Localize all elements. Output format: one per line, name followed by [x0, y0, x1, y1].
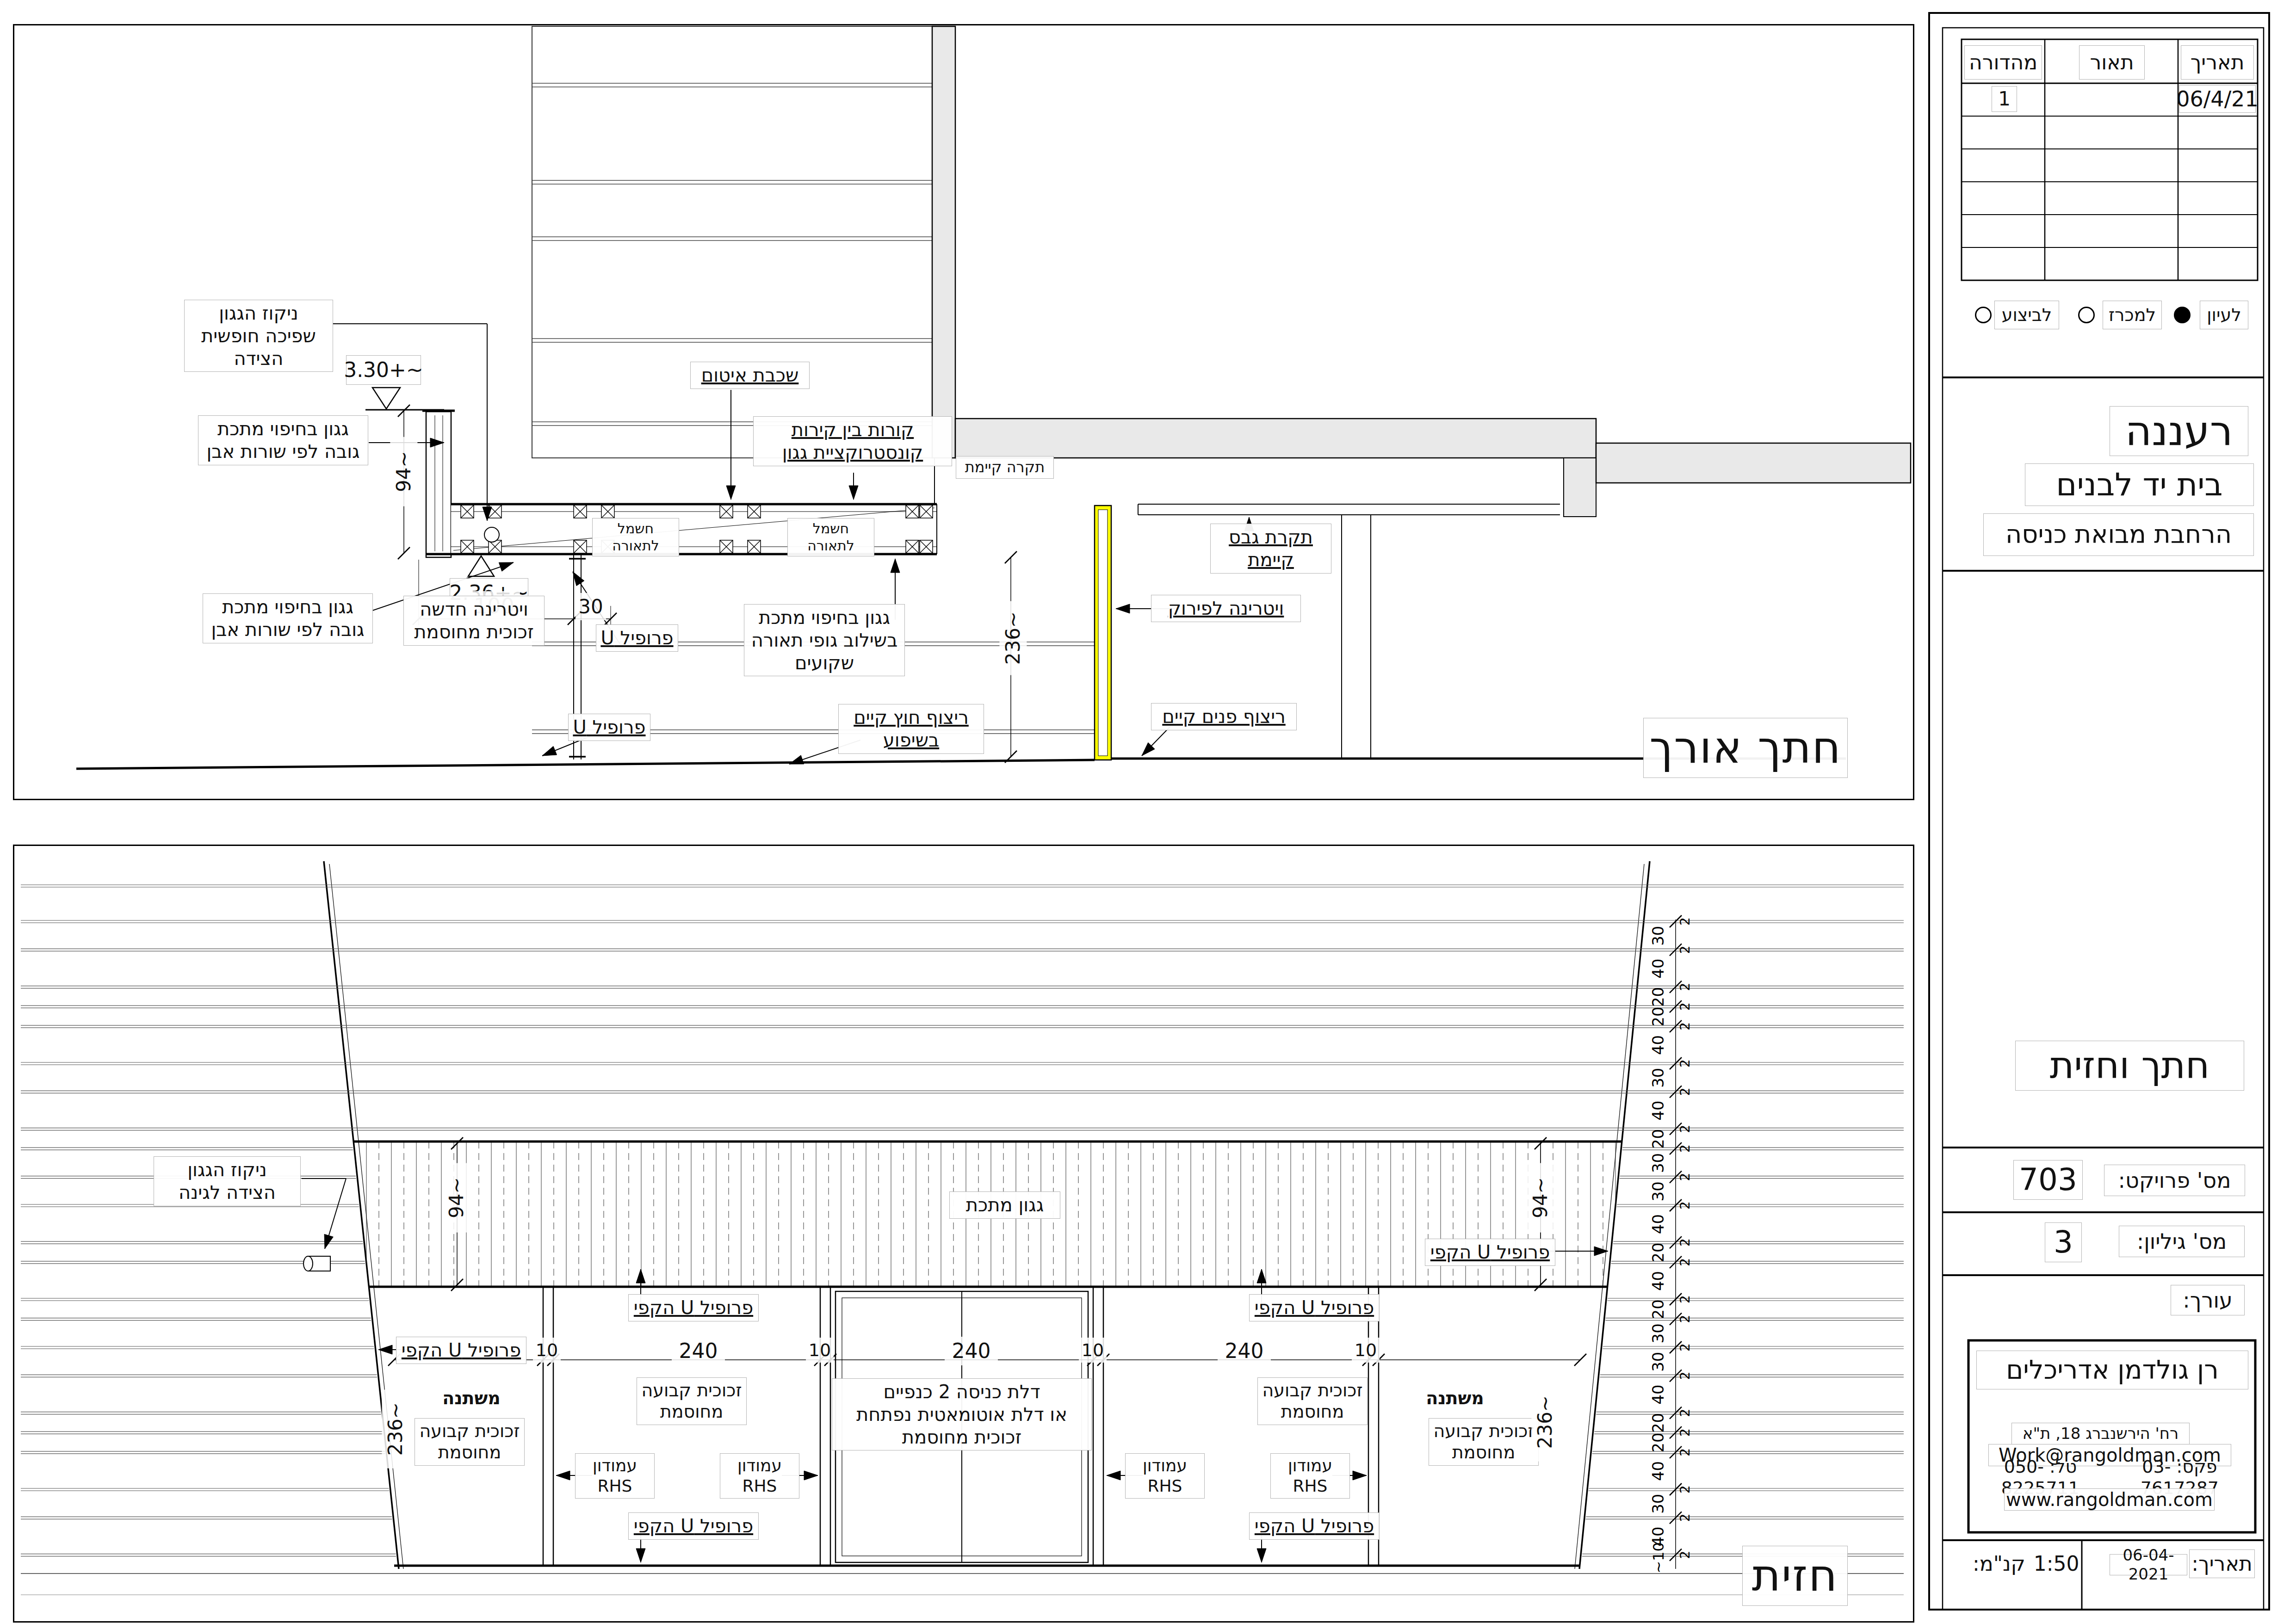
scale-value: 1:50 — [2034, 1551, 2079, 1576]
scale-label: קנ"מ: — [1973, 1551, 2025, 1576]
note-metal-canopy: גגון מתכת — [949, 1191, 1060, 1219]
note-u-perimeter-bay4-bottom: פרופיל U הקפי — [1249, 1512, 1380, 1540]
scale-group: קנ"מ: 1:50 — [1969, 1549, 2068, 1578]
section-caption: חתך אורך — [1643, 718, 1848, 778]
firm-address: רח' הירשנברג 18, ת"א — [2011, 1423, 2190, 1445]
dim-facade-fascia-right: ~94 — [1527, 1163, 1554, 1233]
note-u-profile-bottom: פרופיל U — [568, 714, 650, 741]
date-value: 06-04-2021 — [2110, 1554, 2187, 1575]
dim-30: 30 — [576, 593, 606, 620]
dim-bay-240-3: 240 — [1218, 1337, 1271, 1365]
note-u-perimeter-bay2-bottom: פרופיל U הקפי — [628, 1512, 759, 1540]
dim-glass-height-left: ~236 — [382, 1390, 409, 1469]
dim-facade-fascia-left: ~94 — [443, 1163, 470, 1233]
project-number-label: מס' פרויקט: — [2104, 1165, 2245, 1196]
firm-website[interactable]: www.rangoldman.com — [2004, 1488, 2215, 1511]
radio-label-for-review[interactable]: לעיון — [2200, 301, 2248, 329]
dim-mullion-2: 10 — [806, 1338, 834, 1363]
note-interior-floor: ריצוף פנים קיים — [1151, 703, 1297, 730]
note-rhs-column-4: עמודון RHS — [1270, 1453, 1350, 1499]
dim-fascia-height: ~94 — [390, 437, 417, 506]
dim-mullion-3: 10 — [1079, 1338, 1107, 1363]
note-entrance-door: דלת כניסה 2 כנפיים או דלת אוטומאטית נפתח… — [832, 1378, 1092, 1450]
note-canopy-cladding-1: גגון בחיפוי מתכת גובה לפי שורות אבן — [198, 415, 368, 465]
level-marker-top: ~+3.30 — [346, 355, 421, 385]
facade-caption: חזית — [1742, 1546, 1848, 1606]
note-u-perimeter-bay5: פרופיל U הקפי — [1425, 1239, 1555, 1266]
dim-bay-240-1: 240 — [672, 1337, 725, 1365]
revision-header-date: תאריך — [2181, 45, 2254, 80]
sheet-number-value: 3 — [2045, 1222, 2082, 1262]
sheet-number-label: מס' גיליון: — [2119, 1226, 2245, 1257]
note-gypsum-ceiling: תקרת גבס קיימת — [1210, 524, 1331, 574]
note-u-perimeter-bay2-top: פרופיל U הקפי — [628, 1294, 759, 1321]
project-city: רעננה — [2110, 406, 2248, 456]
project-number-value: 703 — [2013, 1160, 2083, 1200]
revision-header-edition: מהדורה — [1964, 45, 2042, 80]
dim-bay-240-2: 240 — [945, 1337, 998, 1365]
note-rhs-column-2: עמודון RHS — [720, 1453, 799, 1499]
note-gutter-drain: ניקוז הגגון שפיכה חופשית הצידה — [184, 300, 333, 372]
note-new-vitrine: ויטרינה חדשה זכוכית מחוסמת — [403, 596, 545, 646]
editor-label: עורך: — [2171, 1285, 2245, 1315]
firm-phones: טל: 050-8225711 פקס: 03-7617287 — [1972, 1466, 2249, 1488]
note-canopy-cladding-2: גגון בחיפוי מתכת גובה לפי שורות אבן — [203, 593, 373, 643]
note-fixed-glass-bay5: זכוכית קבועה מחוסמת — [1429, 1418, 1539, 1466]
note-u-perimeter-bay4-top: פרופיל U הקפי — [1249, 1294, 1380, 1321]
note-electric-lighting-2: חשמל לתאורה — [787, 518, 874, 556]
dim-mullion-1: 10 — [533, 1338, 561, 1363]
sheet-title: חתך וחזית — [2015, 1041, 2244, 1091]
dim-glass-height-right: ~236 — [1531, 1383, 1559, 1462]
note-rhs-column-1: עמודון RHS — [575, 1453, 655, 1499]
dim-variable-right: משתנה — [1414, 1386, 1496, 1411]
radio-for-tender[interactable] — [2078, 307, 2095, 323]
section-panel — [13, 24, 1914, 800]
note-exterior-floor: ריצוף חוץ קיים בשיפוע — [838, 704, 984, 754]
revision-header-description: תאור — [2079, 45, 2145, 80]
dim-mullion-4: 10 — [1352, 1338, 1380, 1363]
radio-for-execution[interactable] — [1975, 307, 1992, 323]
facade-panel — [13, 845, 1914, 1623]
project-scope: הרחבת מבואת כניסה — [1983, 513, 2254, 556]
note-fixed-glass-bay2: זכוכית קבועה מחוסמת — [637, 1377, 747, 1425]
drawing-sheet: 2302402202202402302402202302302402202402… — [0, 0, 2296, 1623]
note-electric-lighting-1: חשמל לתאורה — [592, 518, 679, 556]
note-fixed-glass-bay1: זכוכית קבועה מחוסמת — [415, 1418, 525, 1466]
radio-for-review[interactable] — [2174, 307, 2191, 323]
note-fixed-glass-bay4: זכוכית קבועה מחוסמת — [1257, 1377, 1368, 1425]
revision-row1-edition: 1 — [1992, 86, 2017, 112]
date-label: תאריך: — [2189, 1549, 2255, 1578]
note-sealing-layer: שכבת איטום — [690, 362, 810, 389]
note-vitrine-demolish: ויטרינה לפירוק — [1151, 595, 1301, 622]
note-rhs-column-3: עמודון RHS — [1125, 1453, 1205, 1499]
project-building: בית יד לבנים — [2025, 463, 2254, 506]
revision-row1-date: 06/4/21 — [2179, 85, 2256, 113]
note-canopy-beams: קורות בין קירות קונסטרוקציית גגון — [753, 416, 952, 466]
dim-clear-height: ~236 — [999, 601, 1027, 675]
radio-label-for-tender[interactable]: למכרז — [2103, 301, 2162, 329]
note-u-perimeter-bay1: פרופיל U הקפי — [396, 1337, 526, 1364]
note-u-profile-top: פרופיל U — [596, 624, 678, 652]
note-canopy-lighting: גגון בחיפוי מתכת בשילוב גופי תאורה שקועי… — [744, 604, 905, 676]
note-gutter-drain-facade: ניקוז הגגון הצידה לגינה — [154, 1156, 301, 1206]
note-existing-ceiling: תקרה קיימת — [956, 456, 1054, 479]
dim-variable-left: משתנה — [430, 1386, 513, 1411]
radio-label-for-execution[interactable]: לביצוע — [1994, 301, 2059, 329]
firm-name: רן גולדמן אדריכלים — [1976, 1351, 2248, 1389]
